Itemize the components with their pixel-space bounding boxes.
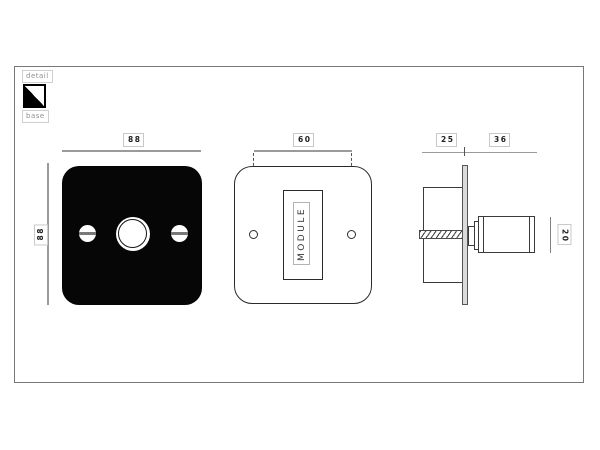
dim-tick: [464, 147, 465, 156]
dim-label-back-depth-25: 25: [436, 133, 457, 147]
base-plate-front-view: [62, 166, 202, 305]
dim-label-knob-20: 20: [558, 224, 572, 245]
screw-hole-right: [347, 230, 356, 239]
screw-slot: [79, 232, 96, 235]
dim-line-depth: [422, 152, 537, 153]
dim-label-width-88: 88: [123, 133, 144, 147]
knob-end-line-right: [529, 217, 530, 252]
dim-line-hole-spacing: [254, 150, 352, 152]
screw-hole-left: [249, 230, 258, 239]
dim-label-hole-spacing-60: 60: [293, 133, 314, 147]
dim-line-width: [62, 150, 201, 152]
dimmer-knob: [116, 217, 150, 251]
module-label-box: MODULE: [293, 202, 310, 265]
legend-base-label: base: [22, 110, 49, 123]
threaded-shaft: [419, 230, 464, 239]
dimmer-knob-ring: [118, 219, 147, 248]
dim-label-height-88: 88: [34, 224, 48, 245]
drawing-canvas: detail base 88 88 60 MODULE 25 36: [0, 0, 600, 450]
knob-end-line-left: [483, 217, 484, 252]
legend-detail-label: detail: [22, 70, 53, 83]
module-label: MODULE: [297, 206, 307, 260]
dim-line-knob-diameter: [550, 217, 551, 253]
screw-left-icon: [79, 225, 96, 242]
screw-right-icon: [171, 225, 188, 242]
finish-swatch-icon: [23, 84, 46, 108]
dim-label-front-depth-36: 36: [489, 133, 510, 147]
screw-slot: [171, 232, 188, 235]
knob-side-view: [478, 216, 535, 253]
module-plate-front-view: MODULE: [234, 166, 372, 304]
module-cutout: MODULE: [283, 190, 323, 280]
